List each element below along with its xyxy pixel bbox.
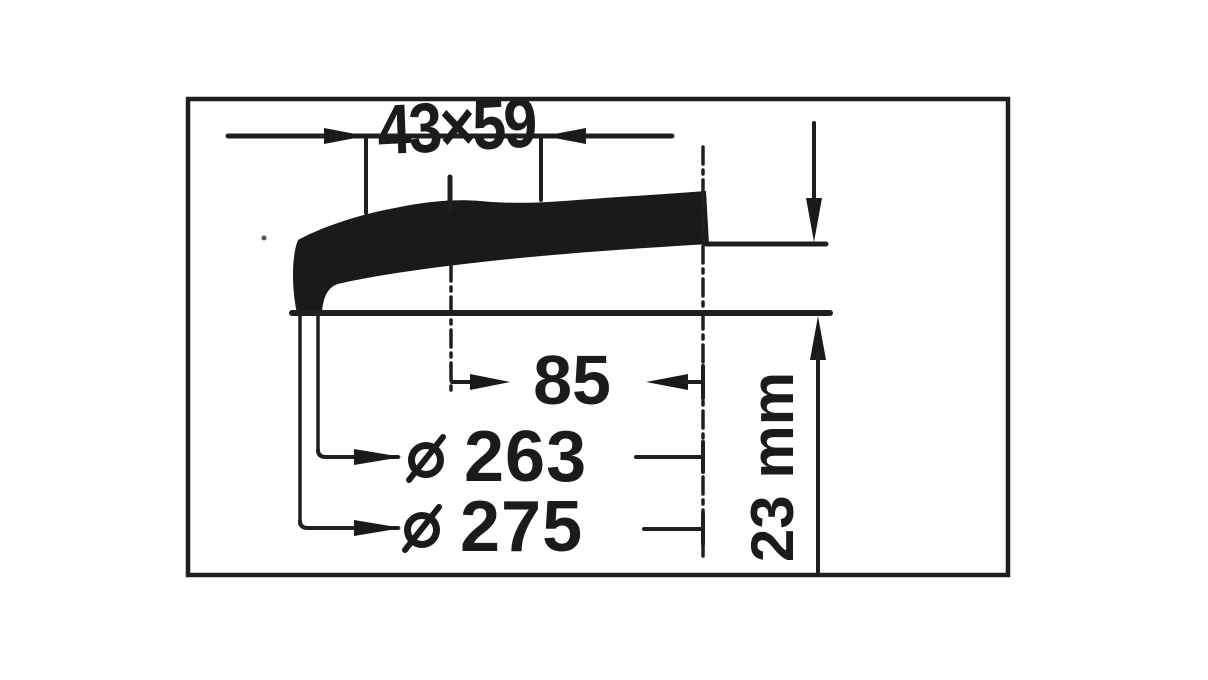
thickness-dimension [806, 123, 826, 572]
diameter-symbol-icon [402, 428, 450, 486]
diameter-small-value: 263 [464, 421, 587, 493]
top-width-dimension-label: 43×59 [370, 85, 542, 167]
depth-dimension-label: 85 [520, 349, 624, 411]
drum-profile-silhouette [293, 191, 709, 313]
scan-speck [262, 236, 267, 241]
diameter-large-label: 275 [398, 494, 583, 560]
diameter-symbol-icon [398, 498, 446, 556]
thickness-dimension-label: 23 mm [740, 362, 806, 572]
technical-drawing-canvas: 43×59 85 263 275 23 mm [0, 0, 1208, 680]
diameter-large-value: 275 [460, 491, 583, 563]
drawing-linework [0, 0, 1208, 680]
left-extension-lines [300, 316, 318, 524]
drawing-frame-border [188, 99, 1008, 575]
diameter-small-label: 263 [402, 424, 587, 490]
